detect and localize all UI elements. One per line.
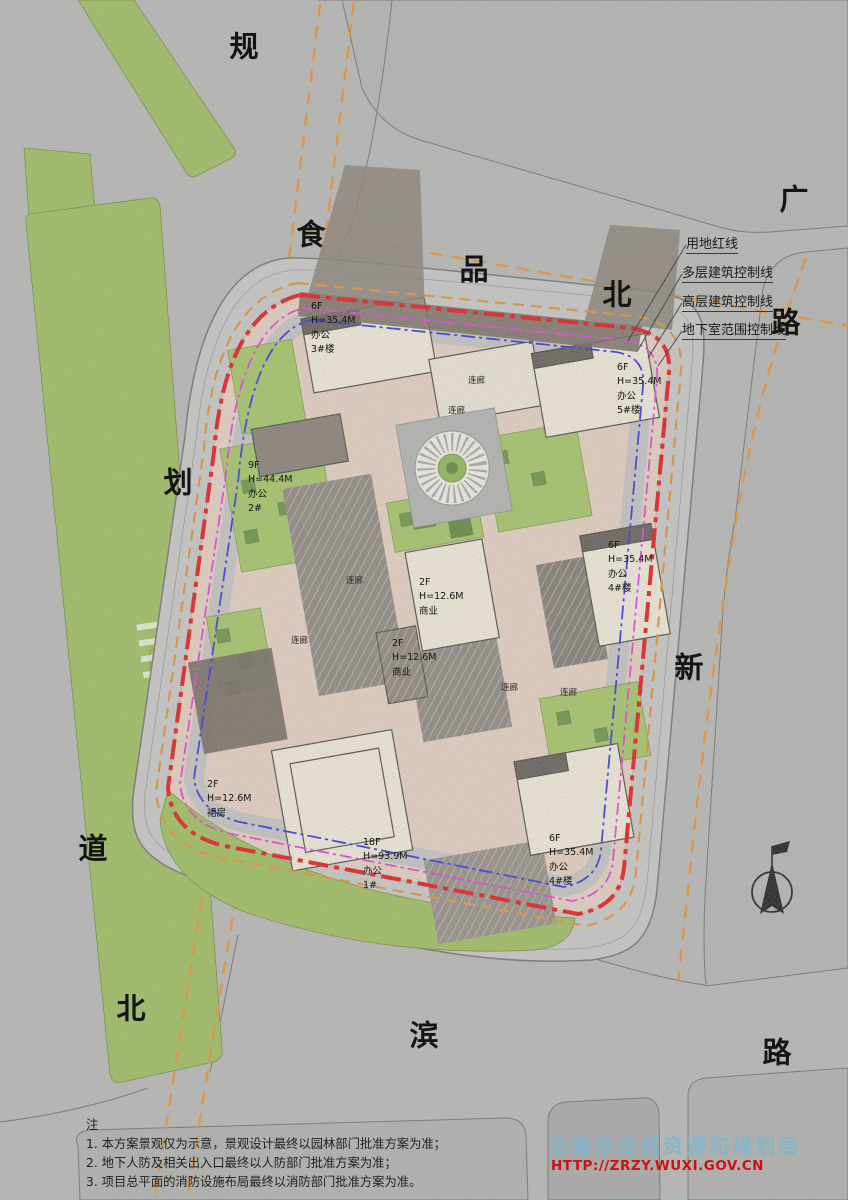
label-building-5: 6F H=35.4M 办公 5#楼 <box>617 361 661 418</box>
road-char-gui: 规 <box>229 33 258 62</box>
corridor-label: 连廊 <box>291 634 308 646</box>
legend-basement-control: 地下室范围控制线 <box>682 319 786 340</box>
note-2: 2. 地下人防及相关出入口最终以人防部门批准方案为准； <box>86 1154 446 1173</box>
label-building-4-mid: 6F H=35.4M 办公 4#楼 <box>608 539 652 596</box>
label-building-3: 6F H=35.4M 办公 3#楼 <box>311 300 355 357</box>
watermark-url: HTTP://ZRZY.WUXI.GOV.CN <box>551 1158 764 1174</box>
label-podium: 2F H=12.6M 裙房 <box>207 778 251 821</box>
corridor-label: 连廊 <box>448 404 465 416</box>
corridor-label: 连廊 <box>346 574 363 586</box>
road-char-bei-sw: 北 <box>116 995 145 1024</box>
watermark-agency: 无锡市自然资源和规划局 <box>548 1130 801 1159</box>
legend-multistory-control: 多层建筑控制线 <box>682 262 773 283</box>
label-building-4-south: 6F H=35.4M 办公 4#楼 <box>549 832 593 889</box>
note-3: 3. 项目总平面的消防设施布局最终以消防部门批准方案为准。 <box>86 1173 446 1192</box>
corridor-label: 连廊 <box>468 374 485 386</box>
corridor-label: 连廊 <box>501 681 518 693</box>
road-char-hua: 划 <box>163 469 192 498</box>
spiral-plaza <box>396 408 513 528</box>
road-char-dao: 道 <box>78 835 107 864</box>
road-char-pin: 品 <box>459 256 488 285</box>
note-1: 1. 本方案景观仅为示意，景观设计最终以园林部门批准方案为准； <box>86 1135 446 1154</box>
legend-highrise-control: 高层建筑控制线 <box>682 291 773 312</box>
road-char-guang: 广 <box>779 186 808 215</box>
notes-block: 注 1. 本方案景观仅为示意，景观设计最终以园林部门批准方案为准； 2. 地下人… <box>86 1116 446 1192</box>
road-char-xin: 新 <box>674 654 703 683</box>
road-char-lu-se: 路 <box>762 1039 791 1068</box>
road-char-bei-n: 北 <box>602 281 631 310</box>
label-commercial-1: 2F H=12.6M 商业 <box>419 576 463 619</box>
road-char-bin: 滨 <box>409 1022 438 1051</box>
label-commercial-2: 2F H=12.6M 商业 <box>392 637 436 680</box>
notes-title: 注 <box>86 1116 446 1135</box>
label-tower-1: 18F H=93.9M 办公 1# <box>363 836 407 893</box>
site-plan-canvas: 规 划 道 北 食 品 北 路 广 新 滨 路 用地红线 多层建筑控制线 高层建… <box>0 0 848 1200</box>
corridor-label: 连廊 <box>560 686 577 698</box>
label-building-2: 9F H=44.4M 办公 2# <box>248 459 292 516</box>
road-char-shi: 食 <box>296 221 325 250</box>
legend-land-red-line: 用地红线 <box>686 233 738 254</box>
